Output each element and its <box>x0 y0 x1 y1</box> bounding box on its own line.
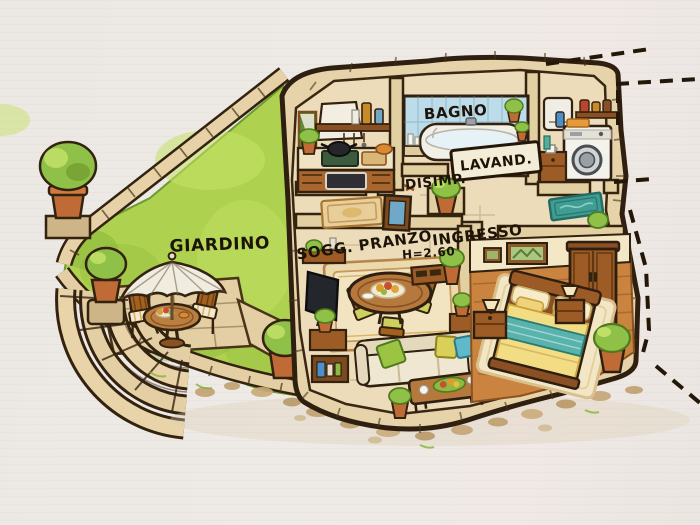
kitchen-pot <box>328 142 350 156</box>
kitchen-bottle <box>362 103 371 124</box>
floor-plan-canvas: GIARDINO BAGNO LAVAND. DISIMP. SOGG. PRA… <box>0 0 700 525</box>
bedroom-picture-large <box>507 243 547 264</box>
laundry-shelf <box>576 112 620 118</box>
kitchen <box>298 102 394 192</box>
corridor-picture <box>383 195 411 230</box>
floor-plan-illustration: GIARDINO BAGNO LAVAND. DISIMP. SOGG. PRA… <box>0 0 700 525</box>
corridor-rug <box>321 197 383 228</box>
laundry-door-plant <box>588 212 608 228</box>
bedroom-picture-small <box>484 248 501 262</box>
garden-pedestal-pot <box>86 248 126 324</box>
garden-bush-pot-left <box>40 142 96 238</box>
washing-machine <box>564 119 611 180</box>
sideboard <box>411 265 446 285</box>
kitchen-shelf <box>316 124 390 131</box>
kitchen-oven <box>326 173 366 189</box>
label-giardino: GIARDINO <box>169 233 270 256</box>
